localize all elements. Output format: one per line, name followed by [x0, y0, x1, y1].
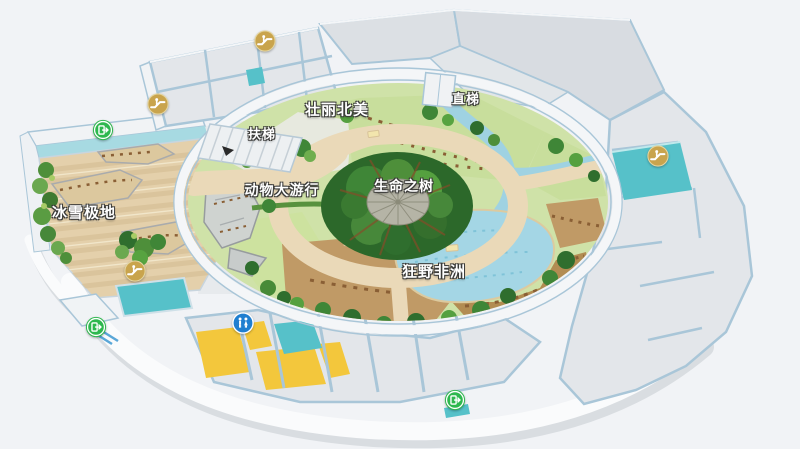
- exit-icon[interactable]: [92, 119, 114, 141]
- escalator-icon[interactable]: [647, 145, 669, 167]
- escalator-icon[interactable]: [254, 30, 276, 52]
- elevator-box: [422, 73, 455, 108]
- exit-icon[interactable]: [85, 316, 107, 338]
- map-label-dongwu-dayouxing: 动物大游行: [245, 180, 320, 200]
- exit-icon[interactable]: [444, 389, 466, 411]
- escalator-icon[interactable]: [147, 93, 169, 115]
- restroom-icon[interactable]: [232, 312, 254, 334]
- escalator-icon[interactable]: [124, 260, 146, 282]
- central-park: [174, 68, 622, 336]
- map-label-futi: 扶梯: [248, 124, 276, 143]
- zoo-map-page: 冰雪极地壮丽北美狂野非洲生命之树动物大游行扶梯直梯: [0, 0, 800, 449]
- map-label-zhiti: 直梯: [452, 89, 480, 108]
- map-label-kuangye-feizhou: 狂野非洲: [402, 261, 466, 282]
- map-label-shengming-zhishu: 生命之树: [374, 176, 434, 196]
- elevator-shaft: [246, 67, 265, 86]
- tree-of-life: [321, 152, 473, 260]
- map-label-bingxue-jidi: 冰雪极地: [52, 202, 116, 223]
- park-map-svg: [0, 0, 800, 449]
- map-label-zhuangli-beimei: 壮丽北美: [305, 99, 369, 120]
